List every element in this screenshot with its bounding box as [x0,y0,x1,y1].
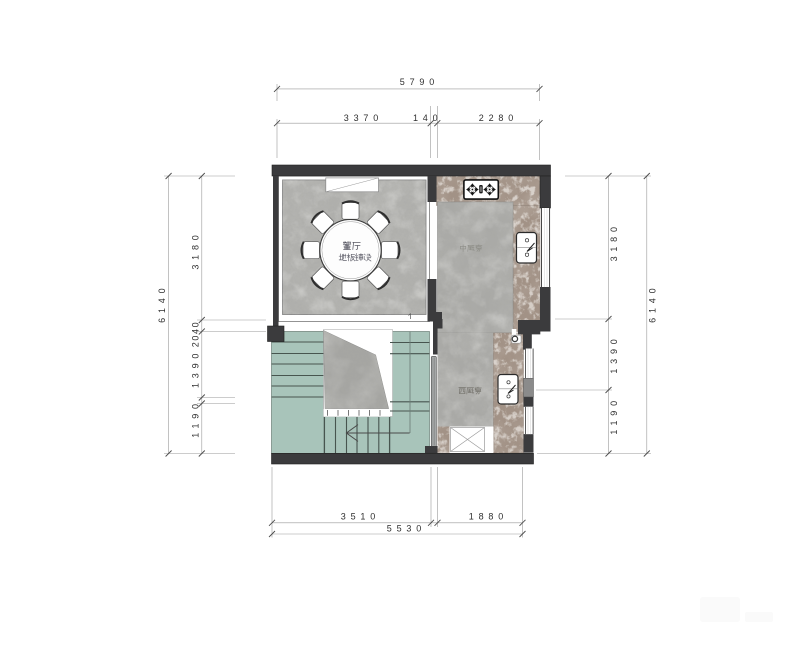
svg-text:140: 140 [413,113,442,123]
svg-text:1390: 1390 [190,349,200,388]
svg-text:5530: 5530 [387,524,426,534]
svg-text:3180: 3180 [609,222,619,261]
svg-text:6140: 6140 [157,284,167,323]
svg-text:3510: 3510 [341,512,380,522]
svg-text:3370: 3370 [344,113,383,123]
svg-text:1190: 1190 [190,399,200,438]
svg-text:1190: 1190 [609,396,619,435]
svg-text:2040: 2040 [190,321,200,347]
svg-text:1880: 1880 [469,512,508,522]
svg-text:3180: 3180 [190,230,200,269]
svg-text:2280: 2280 [479,113,518,123]
svg-text:6140: 6140 [647,284,657,323]
svg-text:5790: 5790 [400,77,439,87]
svg-text:1390: 1390 [609,334,619,373]
